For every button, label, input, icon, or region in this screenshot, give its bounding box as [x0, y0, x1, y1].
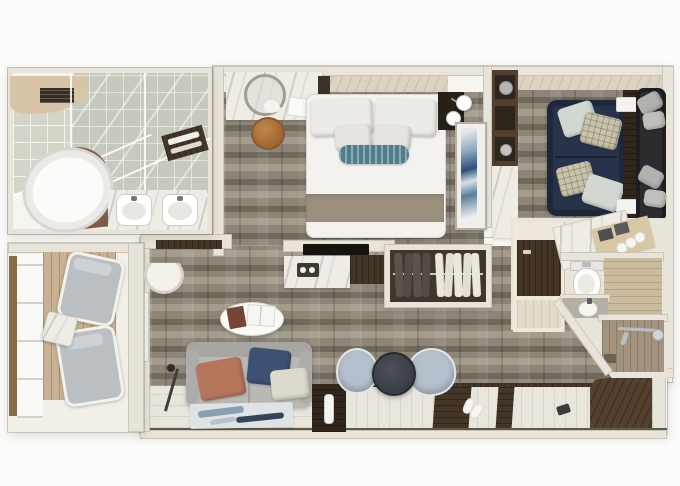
sofa-seam — [555, 156, 617, 158]
lounger-headrest — [73, 257, 113, 277]
entry-door-mat-floor — [590, 370, 654, 430]
wall-art — [455, 122, 487, 230]
shower-glass-frame-2 — [144, 73, 146, 193]
teal-bolster-pillow — [339, 145, 409, 164]
remote-control — [324, 394, 334, 424]
glassware — [500, 144, 512, 156]
shelf-box — [495, 106, 515, 130]
faucet — [131, 196, 137, 201]
rug-streak — [210, 416, 236, 425]
dark-garment — [421, 253, 431, 297]
sink-basin — [168, 202, 192, 220]
cream-pillow — [270, 367, 311, 401]
balcony-wall-right — [128, 243, 144, 432]
shower-head — [652, 329, 664, 341]
wall-bottom — [140, 430, 667, 439]
toilet-seat — [578, 274, 595, 294]
wall-desk — [156, 240, 222, 249]
hall-dark-plank-2 — [495, 386, 514, 430]
tv — [303, 244, 369, 255]
wardrobe-handle — [523, 250, 531, 254]
wall-art-canvas — [461, 128, 477, 220]
ceiling-vent — [40, 88, 74, 103]
book-spine — [259, 306, 261, 325]
flush-button — [582, 262, 591, 267]
bath-wood-panel-wall — [604, 258, 662, 318]
coffee-cup — [309, 267, 315, 273]
floor-lamp-head — [167, 364, 175, 372]
light-garment — [453, 253, 463, 297]
vanity-stool — [251, 117, 285, 150]
faucet — [177, 196, 183, 201]
dining-table — [372, 352, 416, 396]
balcony — [8, 243, 144, 432]
railing-post — [9, 256, 17, 416]
wall-west-bedroom — [213, 66, 224, 256]
bath-tap — [587, 298, 592, 304]
gray-pillow-4 — [643, 189, 667, 209]
folded-towel-dark — [598, 228, 614, 242]
book-open — [246, 304, 275, 327]
wardrobe-walnut-front — [517, 240, 561, 296]
book-red — [226, 306, 246, 330]
suite-floor-plan — [0, 0, 680, 486]
shelf-box — [495, 137, 515, 161]
dark-garment — [412, 253, 422, 297]
coffee-tray — [297, 263, 319, 277]
sink-basin — [122, 202, 146, 220]
folded-towel-dark — [614, 222, 630, 236]
rug-streak — [236, 412, 284, 423]
bed-runner — [306, 194, 444, 222]
vanity-sink-left — [116, 194, 152, 226]
vanity-sink-right — [162, 194, 198, 226]
plates — [499, 81, 513, 95]
shelving-unit — [492, 70, 518, 166]
area-rug — [190, 402, 293, 429]
shelf-box — [495, 75, 515, 99]
coffee-cup — [300, 267, 306, 273]
glass-railing — [17, 254, 43, 418]
wall-entry-east — [652, 374, 666, 432]
sphere-lamp-1 — [456, 95, 472, 111]
terracotta-pillow — [195, 356, 247, 401]
master-bathroom — [8, 68, 212, 234]
vanity-flowers — [264, 100, 279, 113]
